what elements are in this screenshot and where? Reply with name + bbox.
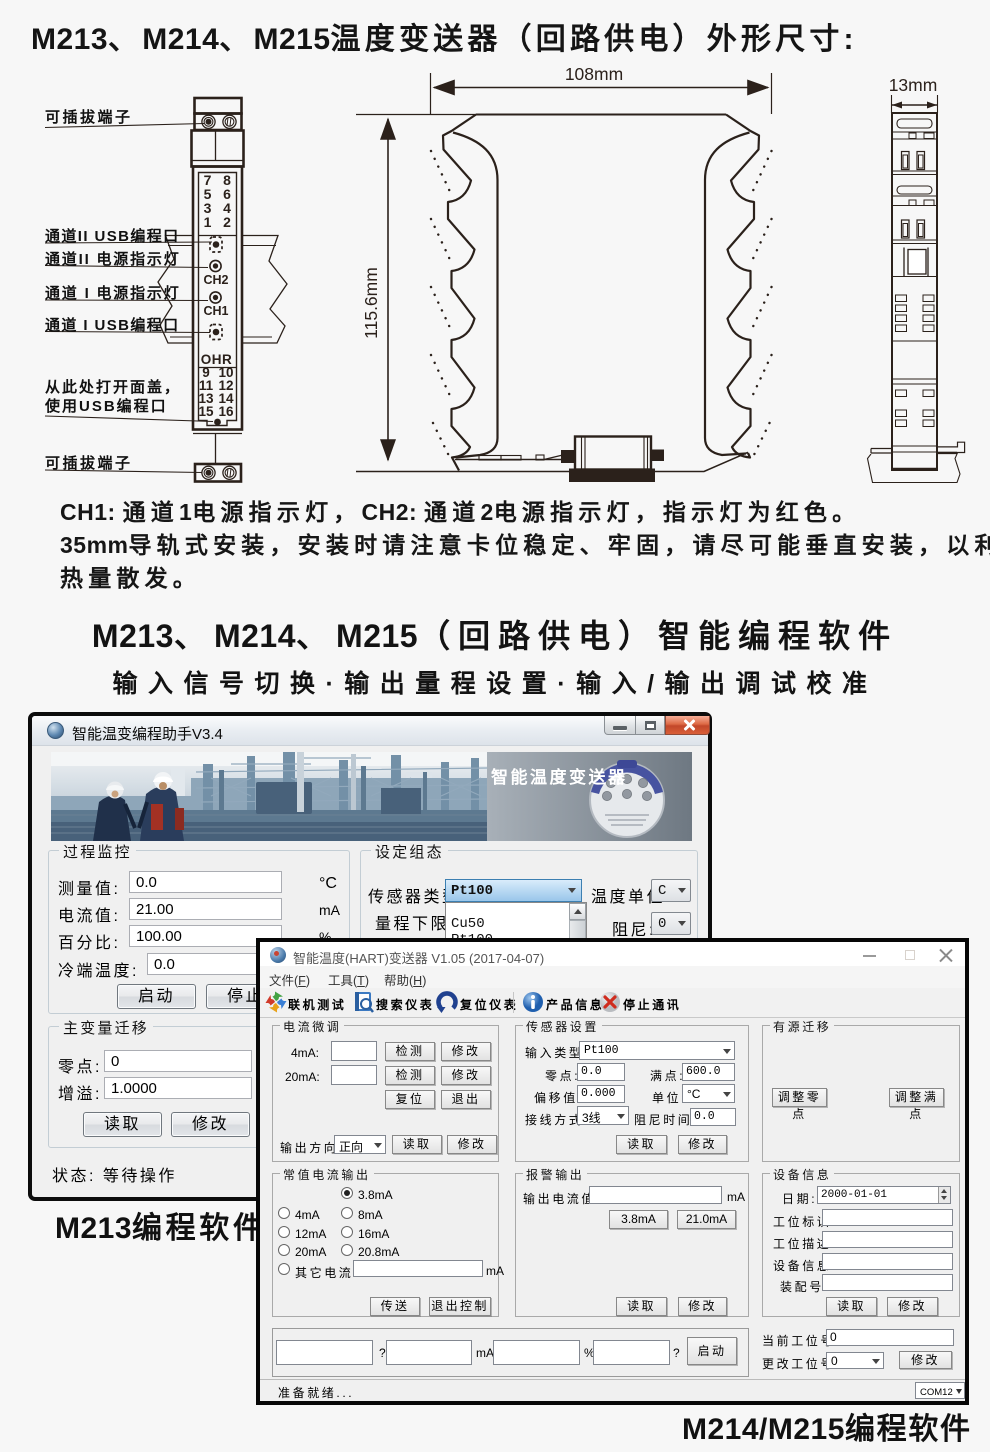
svg-text:16: 16 [218, 404, 234, 419]
svg-text:1: 1 [204, 214, 212, 230]
svg-text:2: 2 [223, 214, 231, 230]
svg-text:13mm: 13mm [889, 75, 938, 95]
svg-text:CH1: CH1 [203, 304, 228, 318]
svg-text:CH2: CH2 [203, 273, 228, 287]
svg-text:15: 15 [198, 404, 214, 419]
svg-text:115.6mm: 115.6mm [361, 267, 381, 339]
svg-text:108mm: 108mm [565, 64, 623, 84]
